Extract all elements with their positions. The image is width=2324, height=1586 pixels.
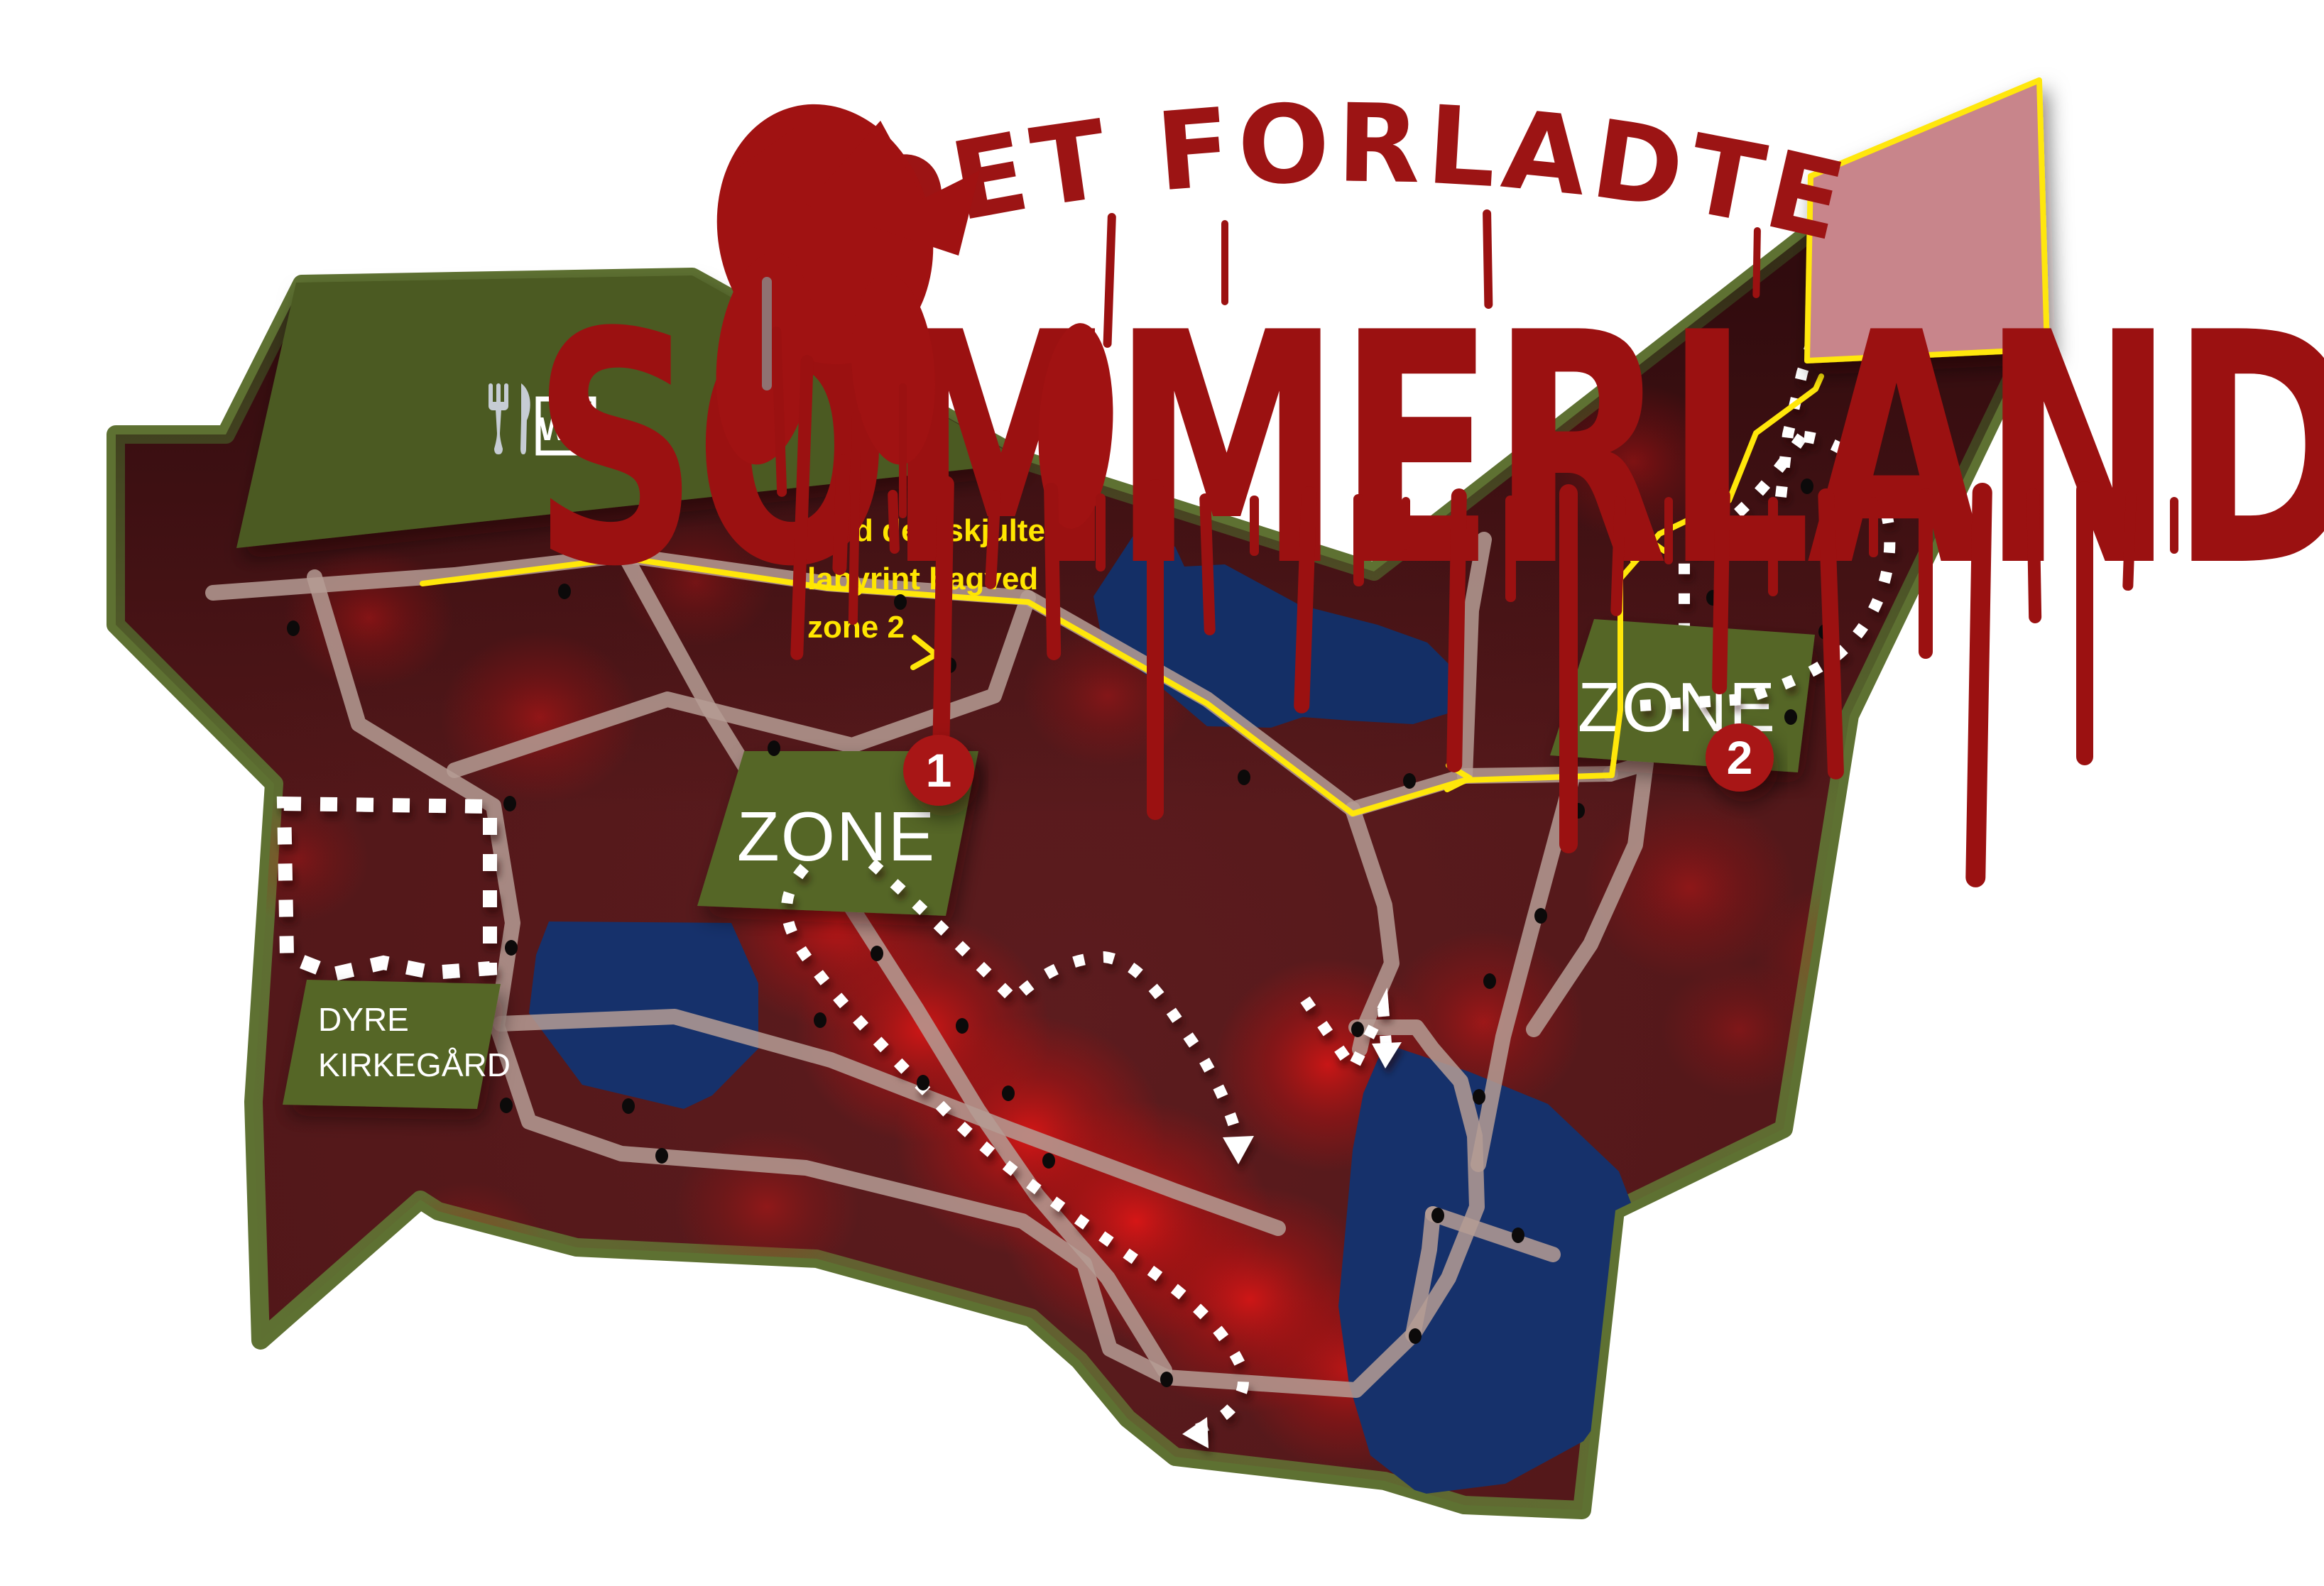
cemetery-label-line1: DYRE bbox=[318, 1001, 409, 1038]
cemetery-plate[interactable] bbox=[283, 980, 501, 1109]
gray-drip bbox=[762, 277, 772, 390]
zone2-badge[interactable]: 2 bbox=[1706, 723, 1774, 792]
svg-text:DET FORLADTE: DET FORLADTE bbox=[845, 80, 1860, 266]
zone2-badge-number: 2 bbox=[1727, 731, 1753, 784]
zone1-badge-number: 1 bbox=[926, 744, 952, 797]
abandoned-sommerland-map-poster: WC ZONE ZONE DYRE KIRKEGÅRD bbox=[0, 0, 2324, 1586]
zone1-label: ZONE bbox=[737, 797, 936, 875]
zone1-badge[interactable]: 1 bbox=[903, 735, 974, 806]
title-line1: DET FORLADTE bbox=[845, 80, 1860, 266]
map-canvas: WC ZONE ZONE DYRE KIRKEGÅRD bbox=[0, 0, 2324, 1586]
cemetery-label-line2: KIRKEGÅRD bbox=[318, 1046, 511, 1083]
